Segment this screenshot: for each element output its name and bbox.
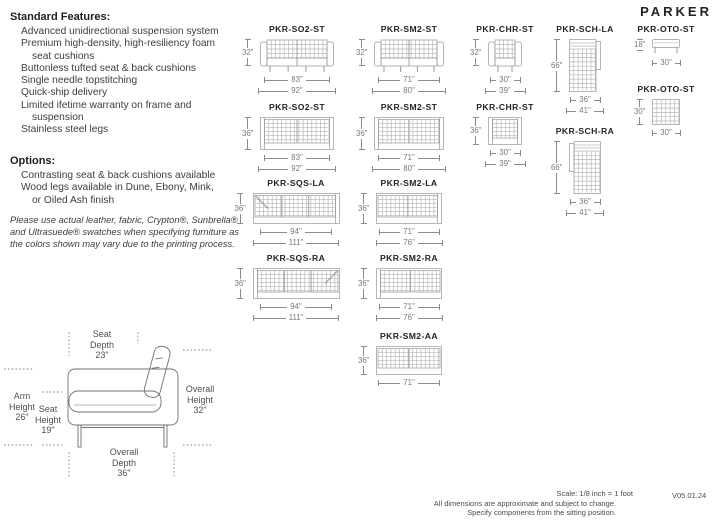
width-dimension: 36" <box>570 96 601 104</box>
product-drawing: 66" <box>569 39 601 92</box>
product-code: PKR-SO2-ST <box>269 102 325 112</box>
height-dimension: 32" <box>356 39 367 66</box>
product-drawing: 18" <box>652 39 680 53</box>
seat-height-label: Seat Height 19" <box>26 404 70 436</box>
product-code: PKR-OTO-ST <box>637 84 694 94</box>
width-dimension: 111" <box>253 239 339 247</box>
product-drawing: 36" <box>488 117 522 145</box>
product-diagram-pkr-sch-la-3: PKR-SCH-LA66"36"41" <box>566 24 604 115</box>
width-dimension: 36" <box>570 198 601 206</box>
product-code: PKR-SM2-LA <box>381 178 438 188</box>
product-drawing: 66" <box>569 141 601 194</box>
product-drawing: 36" <box>376 268 442 299</box>
product-diagram-pkr-so2-st-6: PKR-SO2-ST36"83"92" <box>258 102 336 173</box>
height-dimension: 32" <box>470 39 481 66</box>
width-dimension: 39" <box>485 87 526 95</box>
width-dimension: 71" <box>378 379 440 387</box>
footer-notes: Scale: 1/8 inch = 1 foot All dimensions … <box>434 490 616 517</box>
width-dimension: 41" <box>566 209 604 217</box>
width-dimension: 30" <box>652 59 681 67</box>
height-dimension: 36" <box>242 117 253 150</box>
product-diagram-pkr-sm2-st-1: PKR-SM2-ST32"71"80" <box>372 24 446 95</box>
scale-note: Scale: 1/8 inch = 1 foot <box>434 490 633 499</box>
height-dimension: 66" <box>551 39 562 92</box>
width-dimension: 30" <box>652 129 681 137</box>
height-dimension: 66" <box>551 141 562 194</box>
height-dimension: 36" <box>235 193 246 224</box>
width-dimension: 71" <box>378 76 440 84</box>
width-dimension: 71" <box>378 154 440 162</box>
product-code: PKR-SM2-RA <box>380 253 438 263</box>
product-diagram-pkr-oto-st-4: PKR-OTO-ST18"30" <box>652 24 681 67</box>
product-diagram-pkr-sm2-st-7: PKR-SM2-ST36"71"80" <box>372 102 446 173</box>
product-diagram-pkr-sqs-la-10: PKR-SQS-LA36"94"111" <box>253 178 340 247</box>
product-code: PKR-SCH-LA <box>556 24 613 34</box>
width-dimension: 71" <box>379 303 440 311</box>
seat-depth-label: Seat Depth 23" <box>77 329 127 361</box>
product-code: PKR-SCH-RA <box>556 126 614 136</box>
product-diagram-pkr-chr-st-8: PKR-CHR-ST36"30"39" <box>485 102 526 168</box>
product-code: PKR-CHR-ST <box>476 24 533 34</box>
product-code: PKR-SQS-LA <box>267 178 324 188</box>
height-dimension: 36" <box>470 117 481 145</box>
product-code: PKR-OTO-ST <box>637 24 694 34</box>
width-dimension: 41" <box>566 107 604 115</box>
height-dimension: 36" <box>358 346 369 375</box>
width-dimension: 92" <box>258 87 336 95</box>
width-dimension: 94" <box>260 303 332 311</box>
width-dimension: 76" <box>376 314 443 322</box>
width-dimension: 39" <box>485 160 526 168</box>
product-diagram-pkr-sch-ra-9: PKR-SCH-RA66"36"41" <box>566 126 604 217</box>
height-dimension: 30" <box>634 99 645 125</box>
product-code: PKR-SQS-RA <box>267 253 325 263</box>
product-diagram-pkr-sm2-la-11: PKR-SM2-LA36"71"76" <box>376 178 443 247</box>
width-dimension: 30" <box>490 149 521 157</box>
height-dimension: 36" <box>235 268 246 299</box>
width-dimension: 83" <box>264 76 330 84</box>
width-dimension: 94" <box>260 228 332 236</box>
width-dimension: 92" <box>258 165 336 173</box>
product-drawing: 32" <box>260 39 334 72</box>
product-drawing: 36" <box>376 193 442 224</box>
version-number: V05.01.24 <box>672 491 706 500</box>
sitting-position-note: Specify components from the sitting posi… <box>434 509 616 518</box>
product-drawing: 36" <box>253 268 340 299</box>
width-dimension: 83" <box>264 154 330 162</box>
width-dimension: 71" <box>379 228 440 236</box>
width-dimension: 76" <box>376 239 443 247</box>
width-dimension: 30" <box>490 76 521 84</box>
height-dimension: 18" <box>634 39 645 51</box>
product-drawing: 32" <box>488 39 522 72</box>
product-diagram-pkr-sqs-ra-12: PKR-SQS-RA36"94"111" <box>253 253 340 322</box>
width-dimension: 80" <box>372 165 446 173</box>
height-dimension: 36" <box>358 268 369 299</box>
product-code: PKR-SM2-ST <box>381 102 438 112</box>
product-drawing: 36" <box>376 346 442 375</box>
height-dimension: 36" <box>356 117 367 150</box>
overall-depth-label: Overall Depth 36" <box>100 447 148 479</box>
overall-height-label: Overall Height 32" <box>176 384 224 416</box>
product-diagram-pkr-so2-st-0: PKR-SO2-ST32"83"92" <box>258 24 336 95</box>
product-drawing: 36" <box>374 117 444 150</box>
product-diagram-pkr-sm2-aa-14: PKR-SM2-AA36"71" <box>376 331 442 387</box>
product-drawing: 36" <box>260 117 334 150</box>
product-code: PKR-SM2-ST <box>381 24 438 34</box>
product-diagram-pkr-chr-st-2: PKR-CHR-ST32"30"39" <box>485 24 526 95</box>
product-drawing: 30" <box>652 99 680 125</box>
product-drawing: 36" <box>253 193 340 224</box>
width-dimension: 80" <box>372 87 446 95</box>
height-dimension: 36" <box>358 193 369 224</box>
height-dimension: 32" <box>242 39 253 66</box>
product-diagram-pkr-oto-st-5: PKR-OTO-ST30"30" <box>652 84 681 137</box>
product-code: PKR-CHR-ST <box>476 102 533 112</box>
product-drawing: 32" <box>374 39 444 72</box>
product-code: PKR-SO2-ST <box>269 24 325 34</box>
product-code: PKR-SM2-AA <box>380 331 438 341</box>
product-diagram-pkr-sm2-ra-13: PKR-SM2-RA36"71"76" <box>376 253 443 322</box>
width-dimension: 111" <box>253 314 339 322</box>
